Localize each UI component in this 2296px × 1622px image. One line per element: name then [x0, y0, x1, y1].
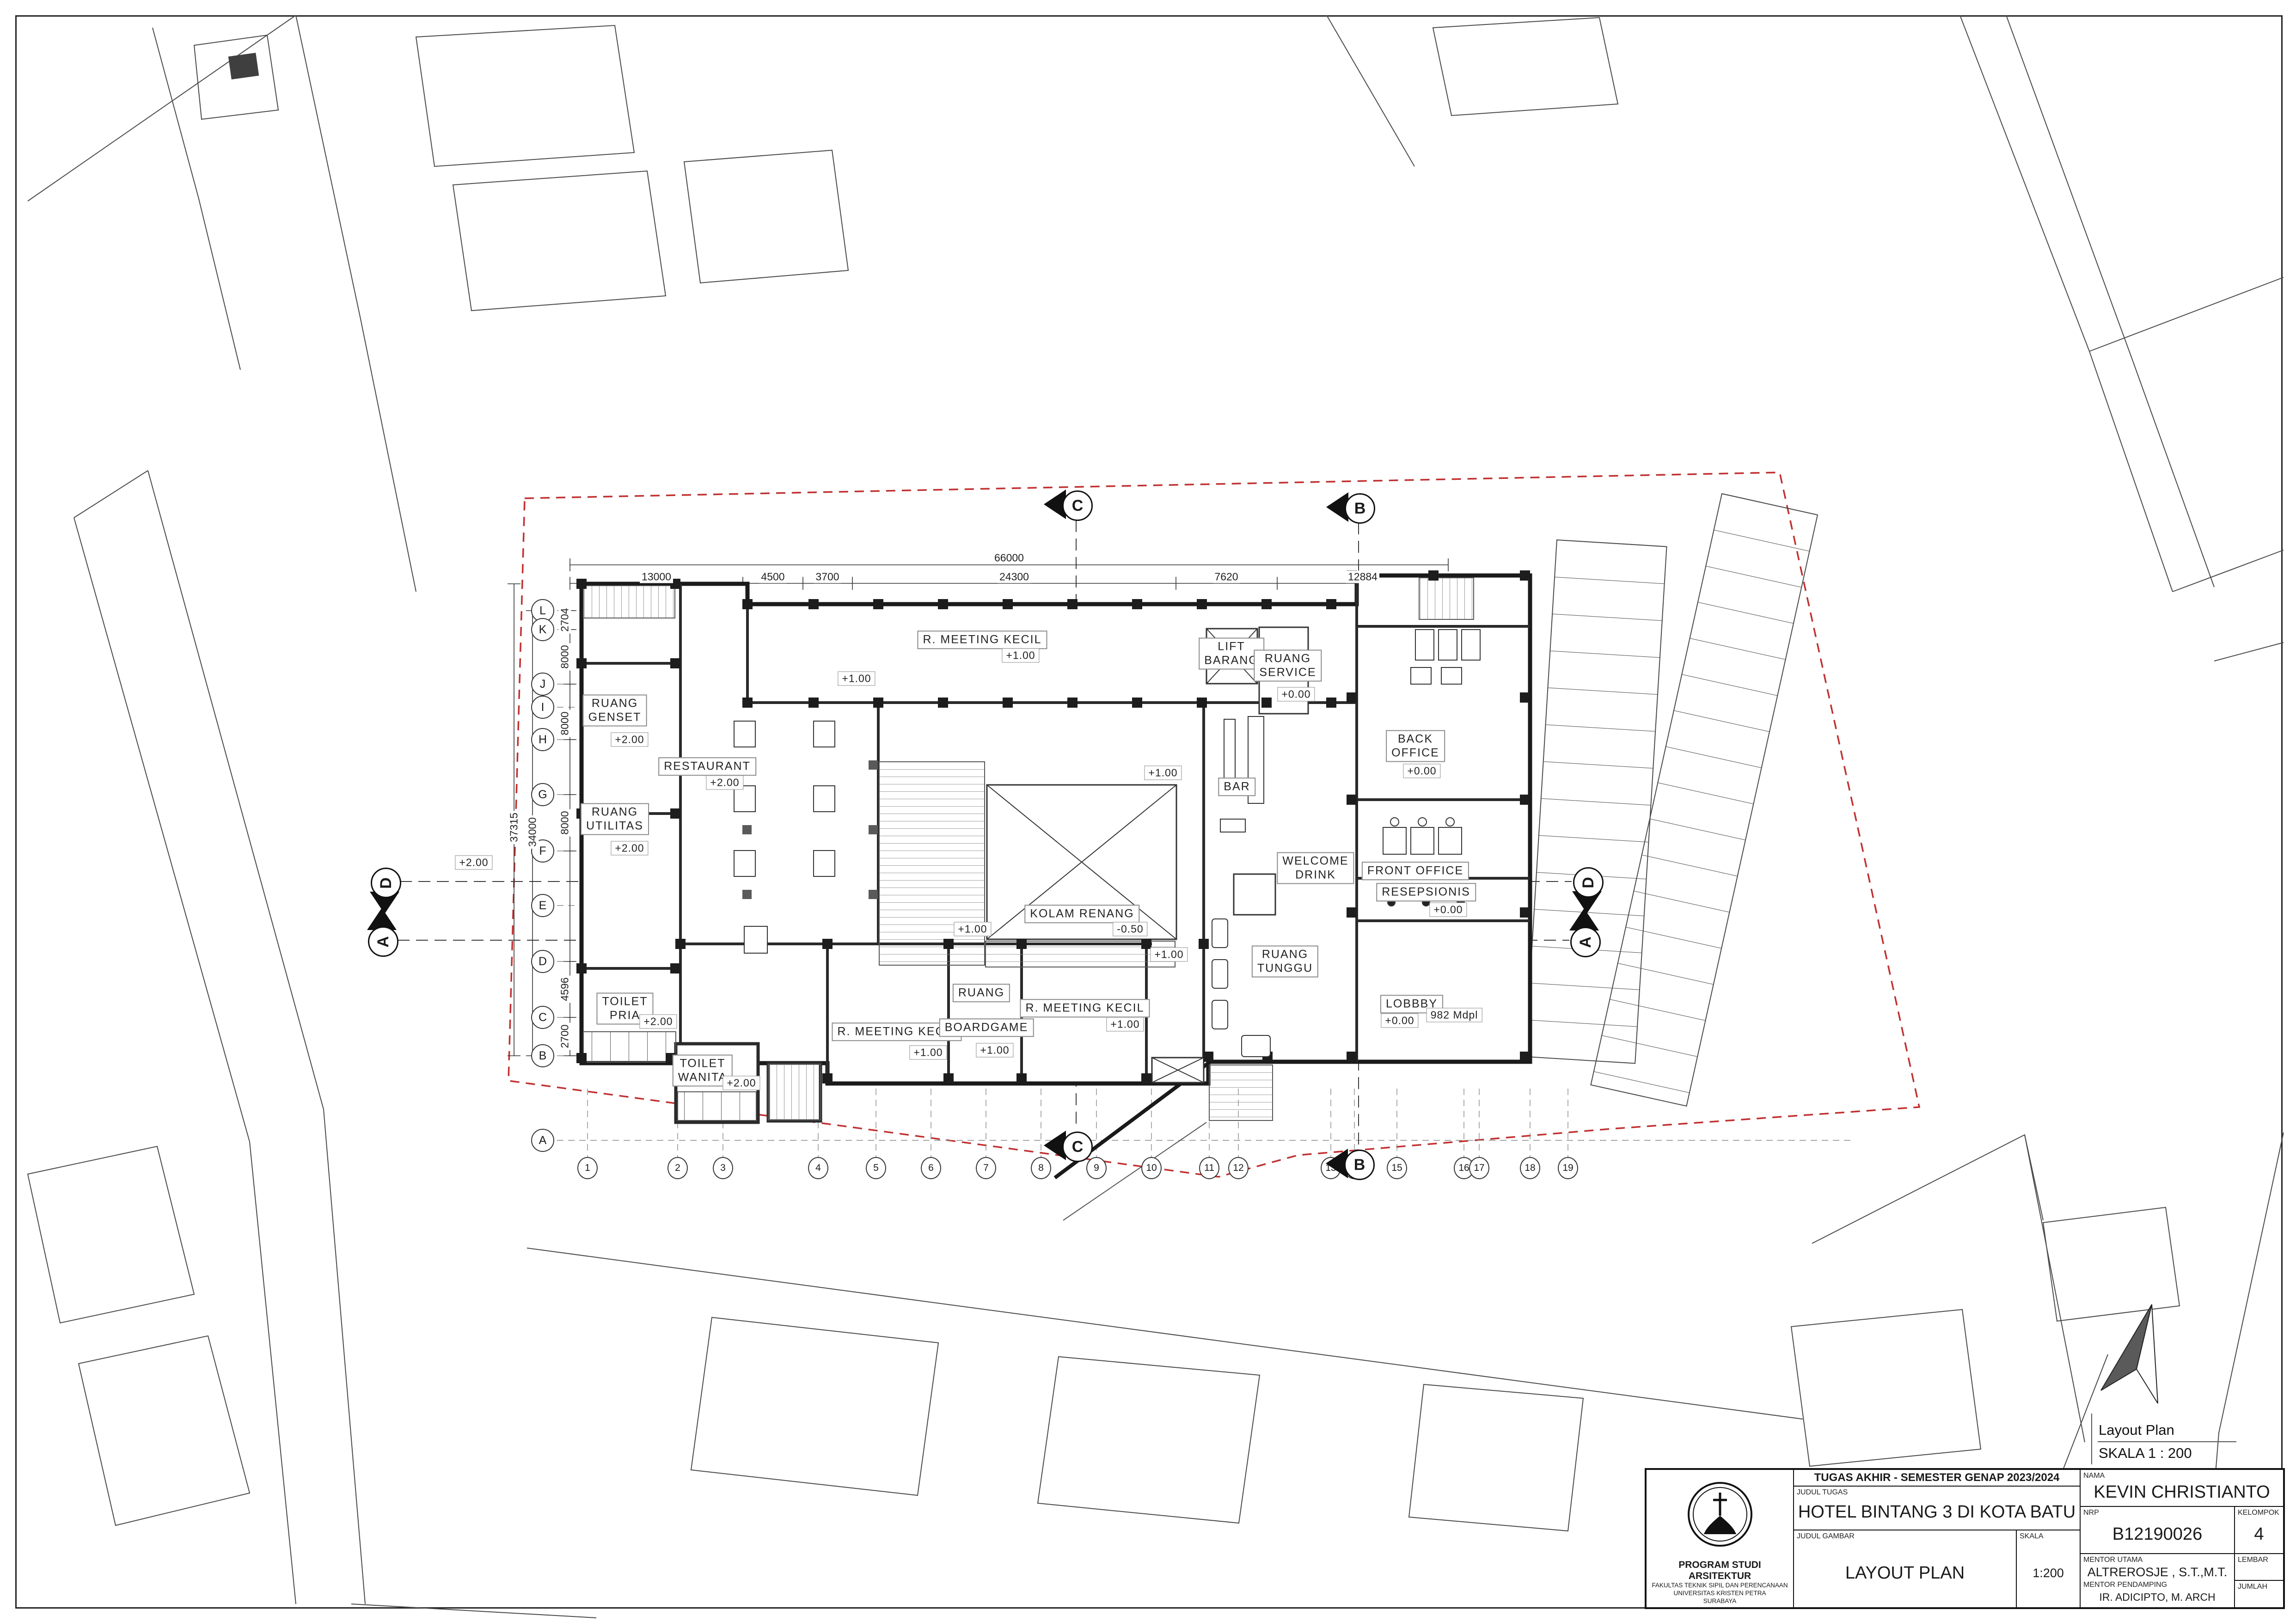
dim-top-4: 7620	[1212, 571, 1240, 583]
room-bar: BAR	[1218, 777, 1255, 796]
grid-bubble-J: J	[531, 673, 554, 696]
dim-top-2: 3700	[814, 571, 841, 583]
grid-bubble-10: 10	[1141, 1157, 1162, 1179]
level-kolam: -0.50	[1113, 922, 1147, 936]
dim-top-0: 13000	[640, 571, 673, 583]
mentor-utama-label: MENTOR UTAMA	[2083, 1556, 2231, 1564]
grid-bubble-C: C	[531, 1006, 554, 1029]
level-utilitas: +2.00	[611, 841, 648, 855]
front-office-desks	[1383, 818, 1462, 854]
room-back-office: BACK OFFICE	[1386, 730, 1445, 762]
level-meeting-b2: +1.00	[1106, 1017, 1144, 1031]
dim-left-3: 8000	[559, 809, 571, 836]
mentor-pendamping-label: MENTOR PENDAMPING	[2083, 1581, 2231, 1589]
level-service: +0.00	[1277, 687, 1315, 701]
nama-label: NAMA	[2083, 1472, 2280, 1480]
room-welcome-drink: WELCOME DRINK	[1277, 852, 1354, 884]
room-boardgame-1: RUANG	[953, 984, 1010, 1002]
judul-gambar-label: JUDUL GAMBAR	[1797, 1532, 2013, 1541]
kelompok-cell: KELOMPOK 4	[2235, 1506, 2284, 1554]
section-marker-B: B	[1344, 1150, 1372, 1177]
mentor-cell: MENTOR UTAMA ALTREROSJE , S.T.,M.T. MENT…	[2080, 1554, 2235, 1608]
level-meeting-b1: +1.00	[909, 1045, 947, 1059]
level-back-office: +0.00	[1403, 764, 1440, 778]
level-lobby: +0.00	[1381, 1013, 1418, 1028]
skala-value: 1:200	[2020, 1541, 2077, 1605]
grid-bubble-7: 7	[976, 1157, 996, 1179]
grid-bubble-D: D	[531, 950, 554, 973]
section-marker-D: D	[1573, 867, 1601, 895]
title-block: PROGRAM STUDI ARSITEKTUR FAKULTAS TEKNIK…	[1645, 1468, 2285, 1609]
elev-lobby: 982 Mdpl	[1427, 1008, 1482, 1022]
level-toilet-pria: +2.00	[639, 1014, 677, 1028]
grid-bubble-19: 19	[1558, 1157, 1578, 1179]
judul-tugas-value: HOTEL BINTANG 3 DI KOTA BATU	[1797, 1497, 2077, 1528]
scale-note-title: Layout Plan	[2098, 1420, 2236, 1441]
dim-left-5: 2700	[559, 1022, 571, 1050]
section-marker-D: D	[371, 868, 398, 895]
level-deck-ne: +1.00	[1144, 765, 1182, 780]
grid-bubble-E: E	[531, 894, 554, 917]
title-block-header: TUGAS AKHIR - SEMESTER GENAP 2023/2024	[1794, 1469, 2080, 1486]
lembar-label: LEMBAR	[2238, 1556, 2280, 1564]
level-band: +1.00	[838, 671, 875, 686]
grid-bubble-18: 18	[1520, 1157, 1540, 1179]
room-front-office: FRONT OFFICE	[1362, 862, 1469, 880]
program-studi: PROGRAM STUDI ARSITEKTUR	[1649, 1560, 1790, 1582]
kelompok-label: KELOMPOK	[2238, 1509, 2280, 1517]
level-deck-w: +1.00	[954, 922, 991, 936]
jumlah-cell: JUMLAH	[2235, 1580, 2284, 1608]
grid-bubble-5: 5	[866, 1157, 886, 1179]
nrp-cell: NRP B12190026	[2080, 1506, 2235, 1554]
plan-linework	[0, 0, 2296, 1622]
section-marker-A: A	[368, 926, 396, 954]
judul-tugas-cell: JUDUL TUGAS HOTEL BINTANG 3 DI KOTA BATU	[1794, 1486, 2080, 1530]
section-marker-C: C	[1062, 490, 1090, 518]
grid-bubble-I: I	[531, 696, 554, 719]
institution-cell: PROGRAM STUDI ARSITEKTUR FAKULTAS TEKNIK…	[1646, 1469, 1794, 1608]
room-boardgame-2: BOARDGAME	[939, 1018, 1034, 1037]
room-ruang-utilitas: RUANG UTILITAS	[581, 803, 649, 835]
section-marker-B: B	[1345, 493, 1372, 521]
nrp-label: NRP	[2083, 1509, 2231, 1517]
room-meeting-kecil-b2: R. MEETING KECIL	[1020, 999, 1150, 1017]
level-site-west: +2.00	[455, 855, 492, 869]
grid-bubble-B: B	[531, 1044, 554, 1067]
dim-top-5: 12884	[1346, 571, 1379, 583]
nama-cell: NAMA KEVIN CHRISTIANTO	[2080, 1469, 2284, 1506]
grid-bubble-6: 6	[921, 1157, 941, 1179]
nama-value: KEVIN CHRISTIANTO	[2083, 1480, 2280, 1504]
grid-bubble-2: 2	[667, 1157, 688, 1179]
section-letter: A	[368, 926, 398, 957]
grid-bubble-G: G	[531, 783, 554, 806]
mentor-pendamping-value: IR. ADICIPTO, M. ARCH	[2083, 1589, 2231, 1606]
section-letter: C	[1062, 490, 1093, 521]
grid-bubble-1: 1	[577, 1157, 598, 1179]
section-letter: D	[371, 868, 401, 898]
dim-left-0: 2704	[559, 606, 571, 633]
section-letter: B	[1344, 1150, 1375, 1180]
grid-bubble-9: 9	[1086, 1157, 1107, 1179]
room-kolam-renang: KOLAM RENANG	[1024, 905, 1139, 923]
dim-left-total-1: 37315	[508, 811, 520, 844]
skala-label: SKALA	[2020, 1532, 2077, 1541]
fakultas: FAKULTAS TEKNIK SIPIL DAN PERENCANAAN	[1649, 1582, 1790, 1590]
level-meeting-top: +1.00	[1002, 648, 1039, 662]
section-marker-C: C	[1062, 1132, 1090, 1159]
judul-tugas-label: JUDUL TUGAS	[1797, 1488, 2077, 1497]
room-ruang-service: RUANG SERVICE	[1254, 650, 1322, 682]
grid-bubble-3: 3	[713, 1157, 733, 1179]
section-letter: C	[1062, 1132, 1093, 1162]
scale-note: Layout Plan SKALA 1 : 200	[2098, 1420, 2236, 1462]
nrp-value: B12190026	[2083, 1517, 2231, 1551]
room-restaurant: RESTAURANT	[658, 757, 756, 776]
scale-note-scale: SKALA 1 : 200	[2098, 1441, 2236, 1462]
judul-gambar-value: LAYOUT PLAN	[1797, 1541, 2013, 1605]
grid-bubble-17: 17	[1469, 1157, 1489, 1179]
grid-bubble-15: 15	[1387, 1157, 1407, 1179]
grid-bubble-H: H	[531, 728, 554, 751]
level-toilet-wanita: +2.00	[722, 1076, 760, 1090]
grid-bubble-11: 11	[1199, 1157, 1219, 1179]
section-letter: D	[1573, 867, 1604, 898]
kota: SURABAYA	[1649, 1598, 1790, 1605]
university-logo	[1649, 1472, 1790, 1557]
room-ruang-genset: RUANG GENSET	[583, 695, 647, 727]
mentor-utama-value: ALTREROSJE , S.T.,M.T.	[2083, 1564, 2231, 1581]
level-deck-se: +1.00	[1150, 947, 1188, 961]
level-boardgame: +1.00	[976, 1043, 1013, 1057]
grid-bubble-A: A	[531, 1129, 554, 1152]
section-letter: A	[1570, 927, 1601, 957]
kelompok-value: 4	[2238, 1517, 2280, 1551]
judul-gambar-cell: JUDUL GAMBAR LAYOUT PLAN	[1794, 1530, 2016, 1608]
dim-left-total-0: 34000	[527, 815, 539, 849]
level-restaurant: +2.00	[706, 775, 743, 790]
grid-bubble-8: 8	[1031, 1157, 1051, 1179]
jumlah-label: JUMLAH	[2238, 1583, 2280, 1591]
grid-bubble-4: 4	[808, 1157, 828, 1179]
dim-left-2: 8000	[559, 710, 571, 737]
dim-left-1: 8000	[559, 643, 571, 670]
level-genset: +2.00	[611, 732, 648, 747]
skala-cell: SKALA 1:200	[2016, 1530, 2080, 1608]
north-arrow-icon	[2101, 1304, 2158, 1403]
dim-left-4: 4596	[559, 975, 571, 1003]
lembar-cell: LEMBAR	[2235, 1554, 2284, 1580]
level-resepsionis: +0.00	[1429, 902, 1467, 917]
universitas: UNIVERSITAS KRISTEN PETRA	[1649, 1590, 1790, 1598]
room-meeting-kecil-top: R. MEETING KECIL	[917, 630, 1047, 649]
drawing-sheet: RUANG GENSET+2.00RUANG UTILITAS+2.00REST…	[0, 0, 2296, 1622]
room-ruang-tunggu: RUANG TUNGGU	[1252, 946, 1318, 978]
grid-bubble-12: 12	[1228, 1157, 1249, 1179]
section-letter: B	[1345, 493, 1375, 524]
section-marker-A: A	[1570, 927, 1598, 955]
room-resepsionis: RESEPSIONIS	[1376, 883, 1476, 901]
dim-overall-width: 66000	[992, 552, 1026, 564]
grid-bubble-K: K	[531, 618, 554, 641]
dim-top-3: 24300	[998, 571, 1031, 583]
dim-top-1: 4500	[759, 571, 786, 583]
